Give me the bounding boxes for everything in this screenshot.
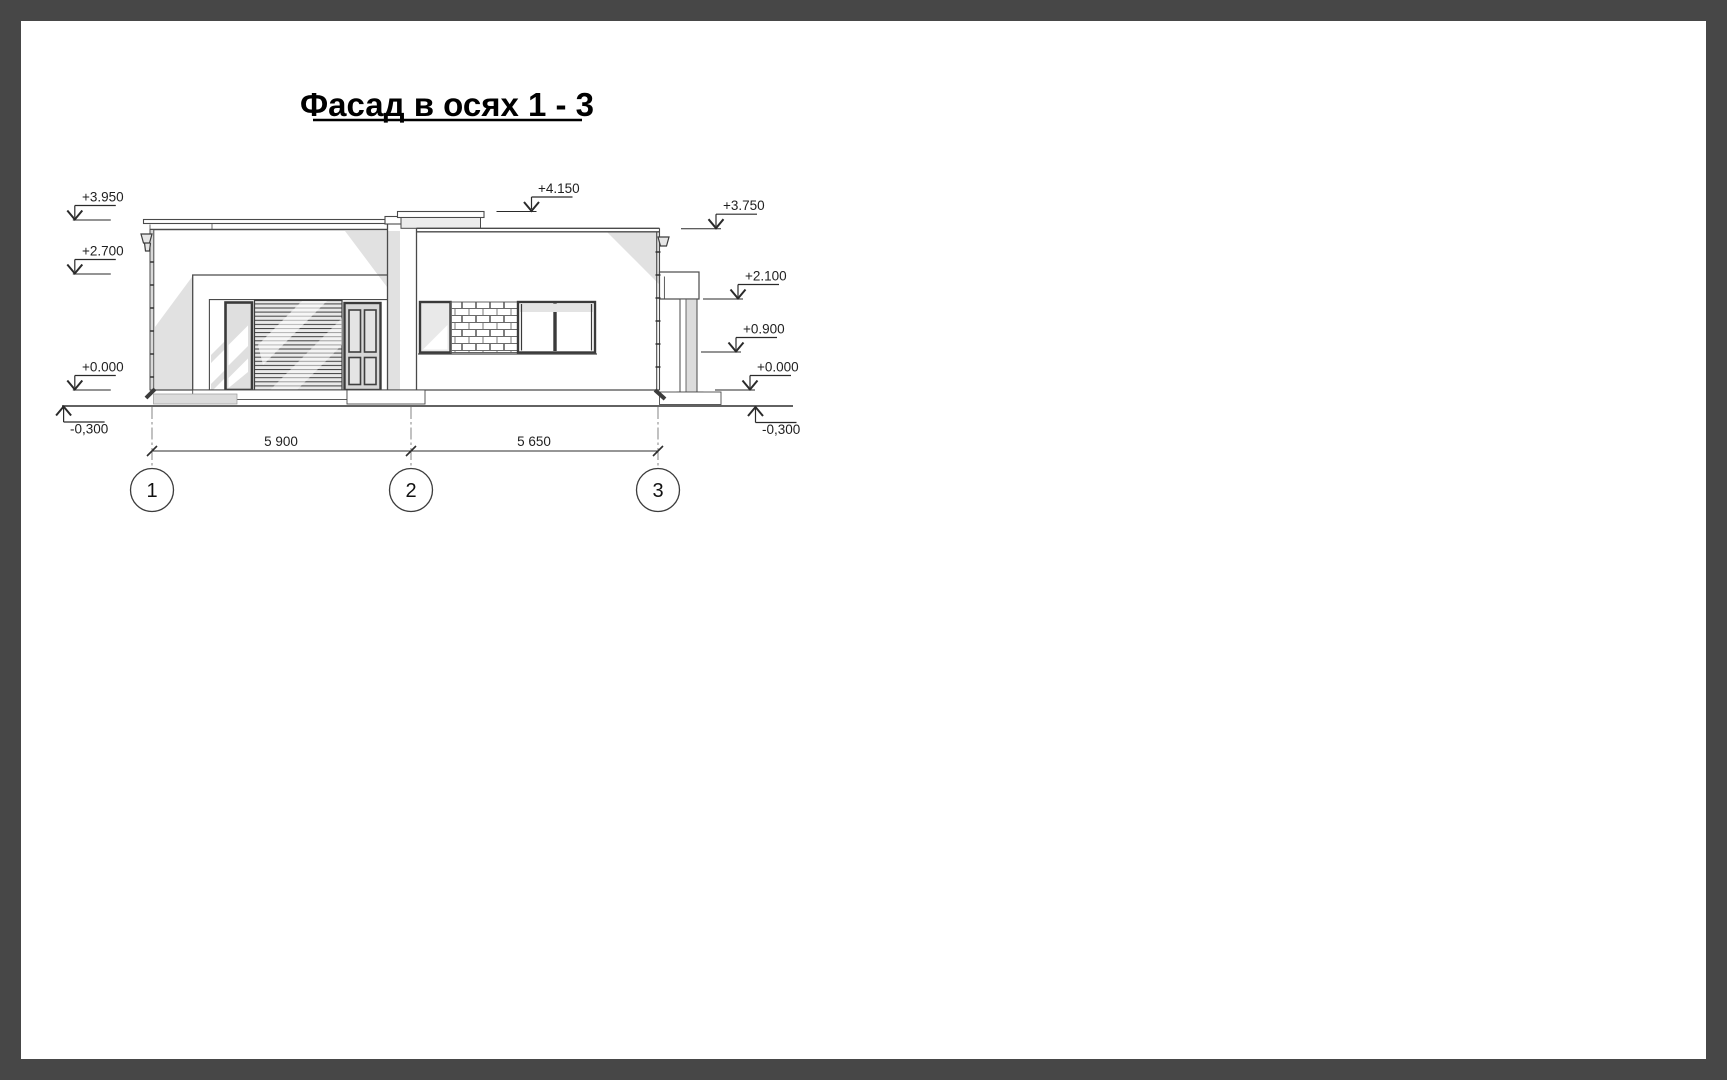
svg-text:+0.000: +0.000 — [757, 360, 799, 375]
svg-text:+2.700: +2.700 — [82, 244, 124, 259]
svg-text:+4.150: +4.150 — [538, 181, 580, 196]
svg-text:-0,300: -0,300 — [70, 422, 108, 437]
svg-text:Фасад в осях 1 - 3: Фасад в осях 1 - 3 — [300, 86, 594, 123]
svg-text:2: 2 — [405, 480, 416, 502]
svg-text:-0,300: -0,300 — [762, 422, 800, 437]
svg-text:5 900: 5 900 — [264, 434, 298, 449]
svg-text:+0.000: +0.000 — [82, 360, 124, 375]
svg-text:5 650: 5 650 — [517, 434, 551, 449]
svg-text:+2.100: +2.100 — [745, 269, 787, 284]
svg-text:+3.950: +3.950 — [82, 190, 124, 205]
svg-text:+0.900: +0.900 — [743, 322, 785, 337]
svg-text:+3.750: +3.750 — [723, 198, 765, 213]
svg-text:3: 3 — [652, 480, 663, 502]
svg-text:1: 1 — [146, 480, 157, 502]
